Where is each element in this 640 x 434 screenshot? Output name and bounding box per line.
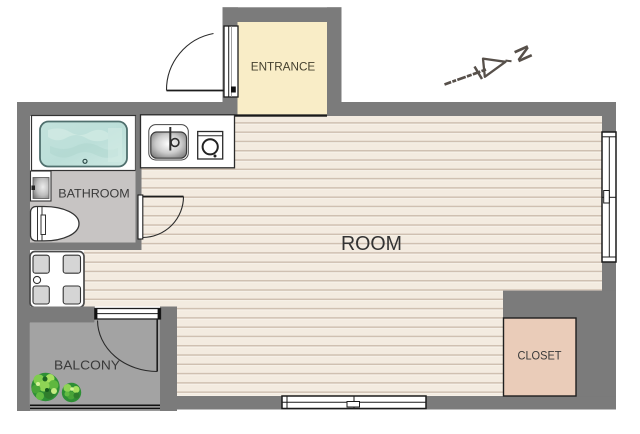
svg-text:BALCONY: BALCONY bbox=[54, 358, 120, 373]
svg-text:BATHROOM: BATHROOM bbox=[58, 188, 130, 200]
svg-text:ENTRANCE: ENTRANCE bbox=[251, 59, 316, 73]
svg-text:CLOSET: CLOSET bbox=[518, 349, 562, 363]
svg-text:ROOM: ROOM bbox=[341, 233, 402, 255]
